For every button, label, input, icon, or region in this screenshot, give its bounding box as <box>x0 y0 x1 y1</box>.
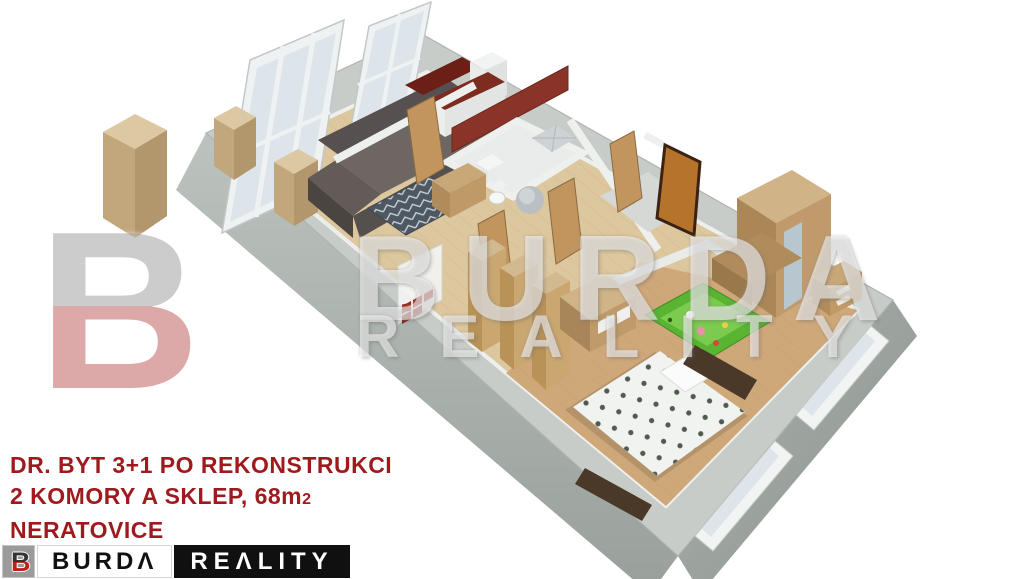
living-wardrobe-tall <box>103 114 167 238</box>
caption-line3: NERATOVICE <box>10 515 392 546</box>
logo-burda-label: BURDΛ <box>37 545 172 578</box>
logo-monogram: B B <box>2 545 35 578</box>
caption-square-meters-exponent: 2 <box>302 491 311 508</box>
logo-reality-label: REΛLITY <box>174 545 349 578</box>
floorplan-image: B B BURDA REALITY DR. BYT 3+1 PO REKONST… <box>0 0 1024 579</box>
caption-line2: 2 KOMORY A SKLEP, 68m2 <box>10 481 392 515</box>
living-wardrobe-2 <box>214 106 256 180</box>
toilet <box>489 192 505 204</box>
wardrobe-mirror <box>784 222 802 310</box>
agency-logo: B B BURDΛ REΛLITY <box>2 545 350 578</box>
listing-caption: DR. BYT 3+1 PO REKONSTRUKCI 2 KOMORY A S… <box>10 450 392 546</box>
caption-line1: DR. BYT 3+1 PO REKONSTRUKCI <box>10 450 392 481</box>
entrance-door <box>657 145 700 235</box>
